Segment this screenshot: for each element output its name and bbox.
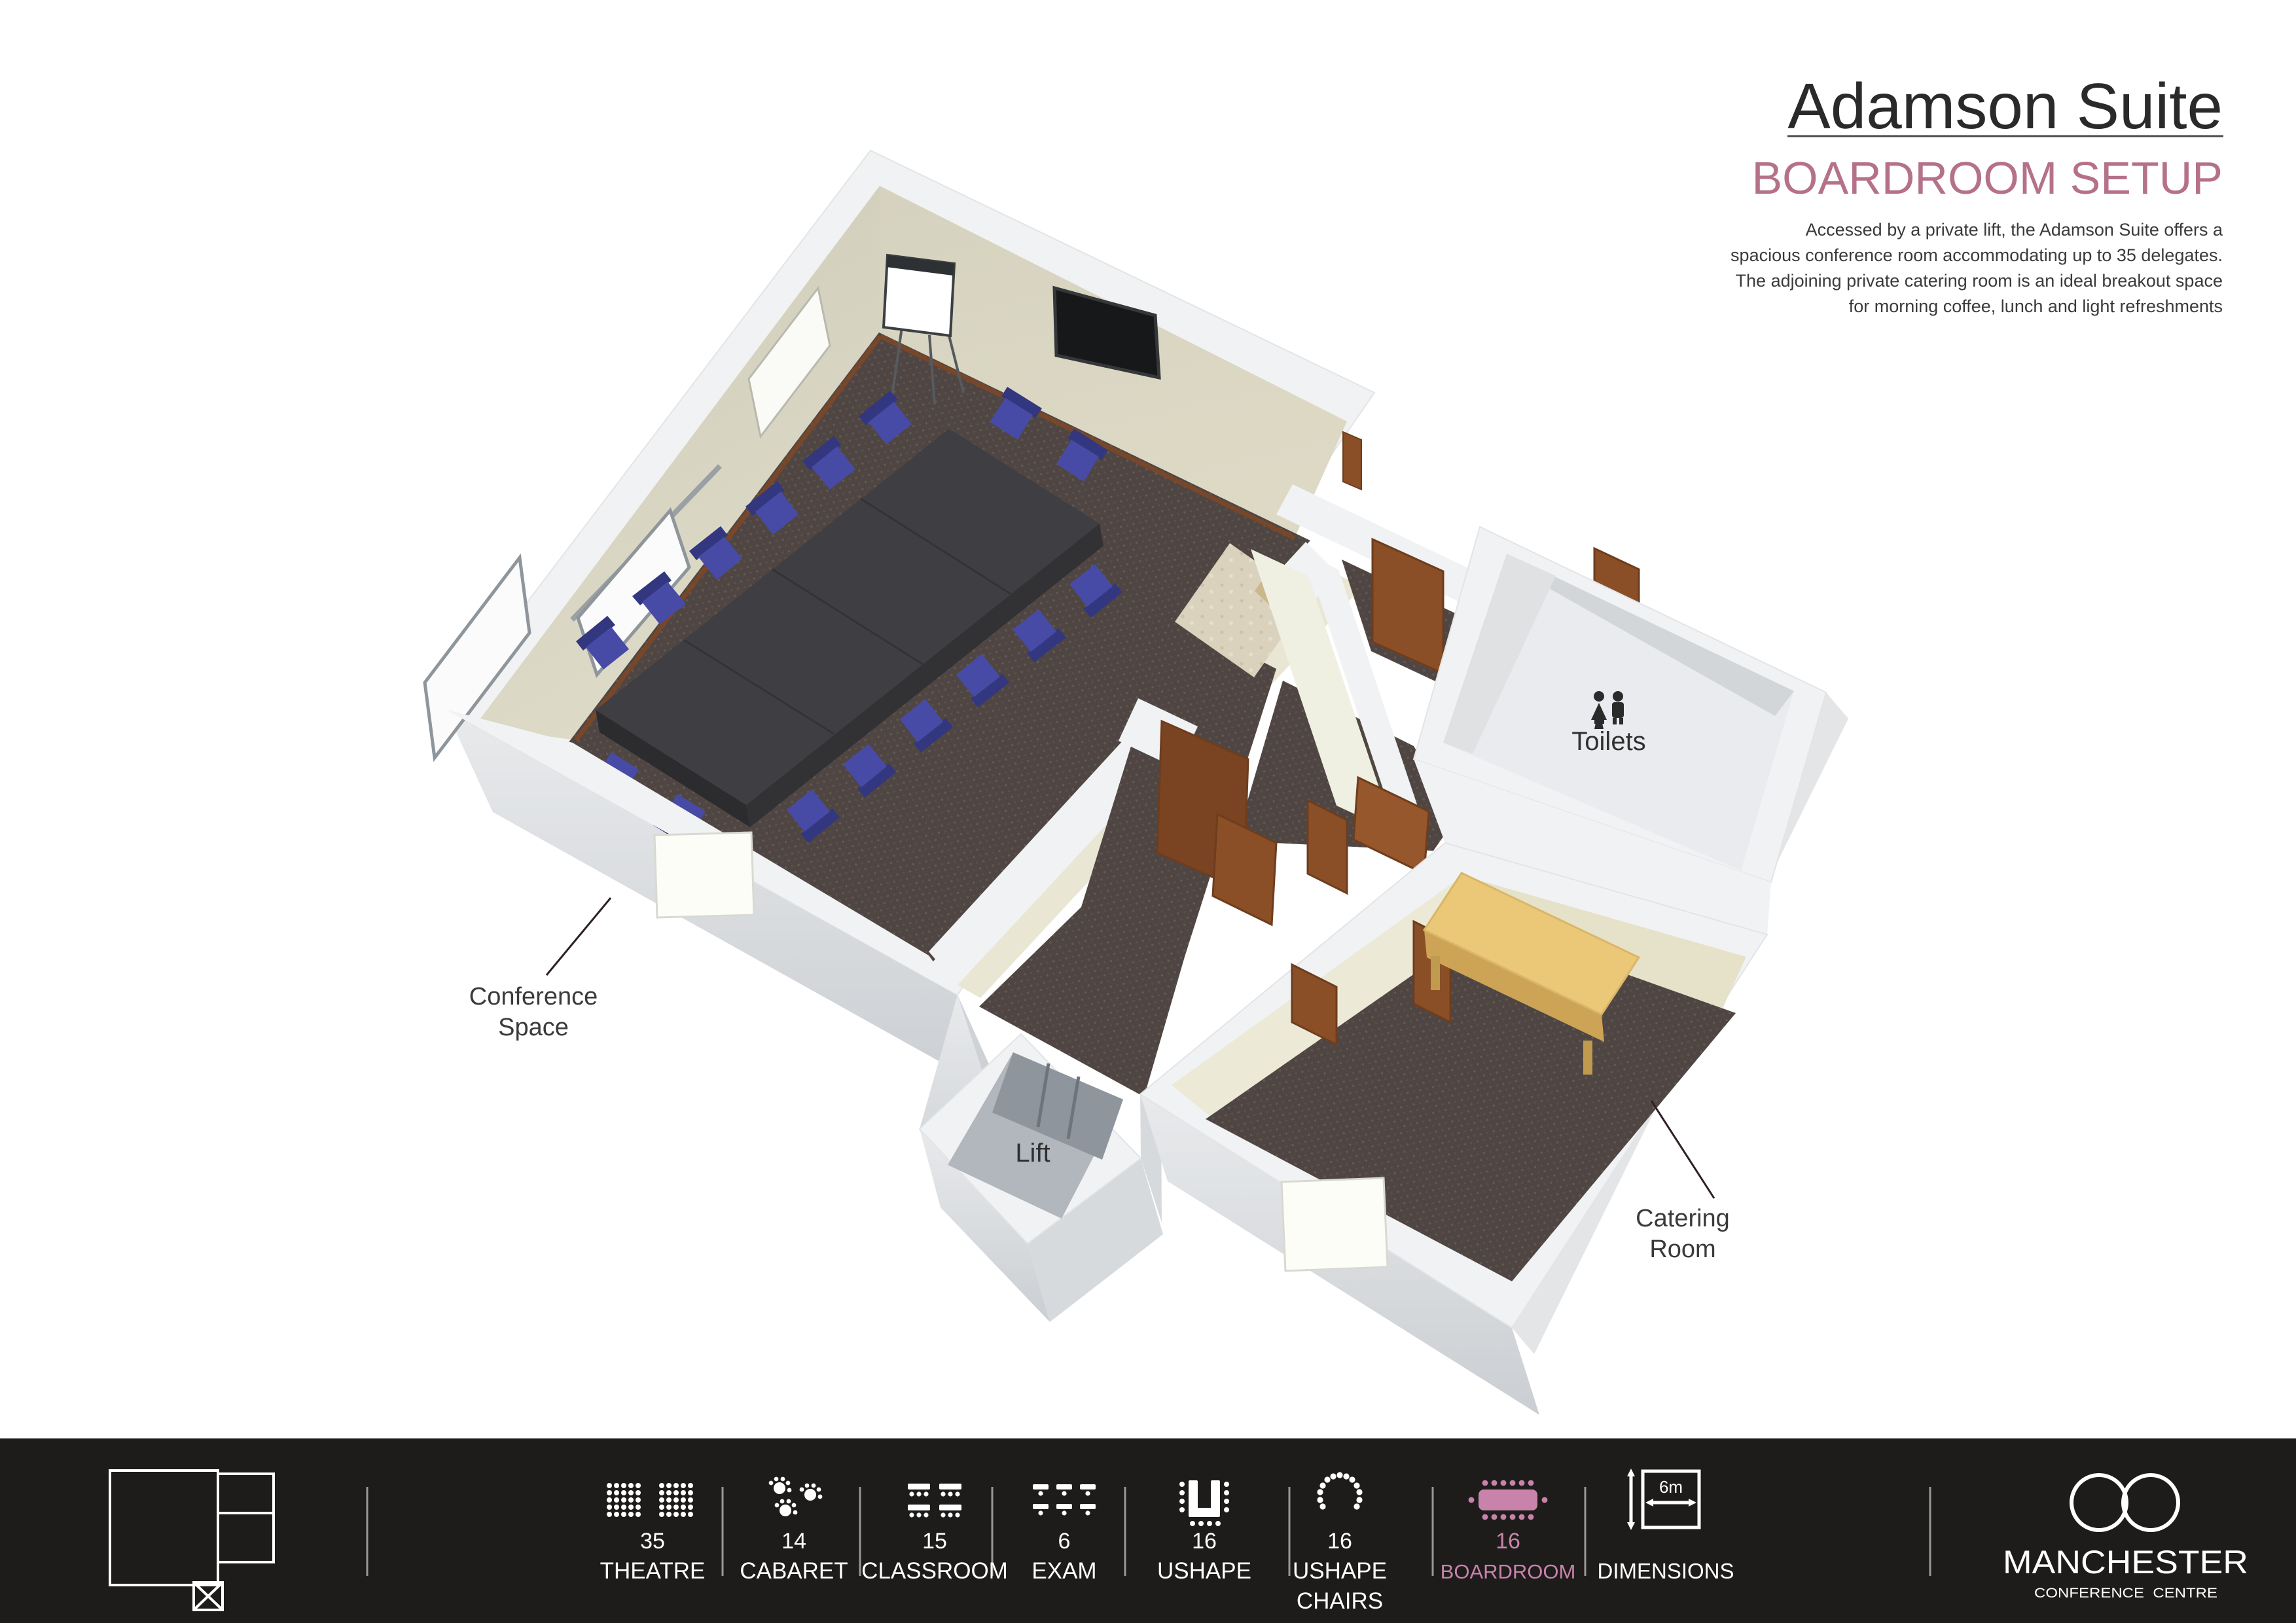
svg-text:Room: Room [1649, 1236, 1715, 1263]
svg-text:Space: Space [498, 1014, 569, 1041]
svg-text:6: 6 [1058, 1529, 1071, 1554]
svg-text:USHAPE: USHAPE [1157, 1558, 1251, 1584]
svg-text:DIMENSIONS: DIMENSIONS [1597, 1559, 1734, 1583]
svg-text:The adjoining private catering: The adjoining private catering room is a… [1736, 271, 2223, 291]
svg-text:spacious conference room accom: spacious conference room accommodating u… [1731, 245, 2223, 265]
svg-text:BOARDROOM: BOARDROOM [1441, 1560, 1576, 1583]
svg-text:16: 16 [1192, 1529, 1217, 1554]
svg-text:for morning coffee, lunch and: for morning coffee, lunch and light refr… [1849, 296, 2223, 316]
svg-text:Adamson Suite: Adamson Suite [1787, 70, 2223, 142]
svg-text:USHAPE: USHAPE [1293, 1558, 1387, 1584]
svg-text:Conference: Conference [469, 983, 598, 1010]
svg-text:15: 15 [922, 1529, 947, 1554]
svg-text:CHAIRS: CHAIRS [1297, 1588, 1383, 1614]
svg-text:16: 16 [1327, 1529, 1352, 1554]
svg-text:Lift: Lift [1015, 1139, 1050, 1168]
svg-text:16: 16 [1496, 1529, 1520, 1554]
svg-text:Accessed by a private lift, th: Accessed by a private lift, the Adamson … [1806, 220, 2223, 240]
svg-text:EXAM: EXAM [1031, 1558, 1096, 1584]
svg-text:Catering: Catering [1636, 1205, 1730, 1232]
svg-text:CONFERENCE CENTRE: CONFERENCE CENTRE [2034, 1586, 2217, 1601]
svg-text:6m: 6m [1659, 1477, 1683, 1497]
svg-text:MANCHESTER: MANCHESTER [2003, 1544, 2248, 1580]
svg-text:CABARET: CABARET [740, 1558, 848, 1584]
svg-text:CLASSROOM: CLASSROOM [861, 1558, 1008, 1584]
svg-text:BOARDROOM SETUP: BOARDROOM SETUP [1751, 152, 2223, 204]
svg-text:Toilets: Toilets [1571, 727, 1645, 756]
svg-text:14: 14 [781, 1529, 806, 1554]
svg-text:THEATRE: THEATRE [600, 1558, 706, 1584]
svg-text:35: 35 [640, 1529, 665, 1554]
